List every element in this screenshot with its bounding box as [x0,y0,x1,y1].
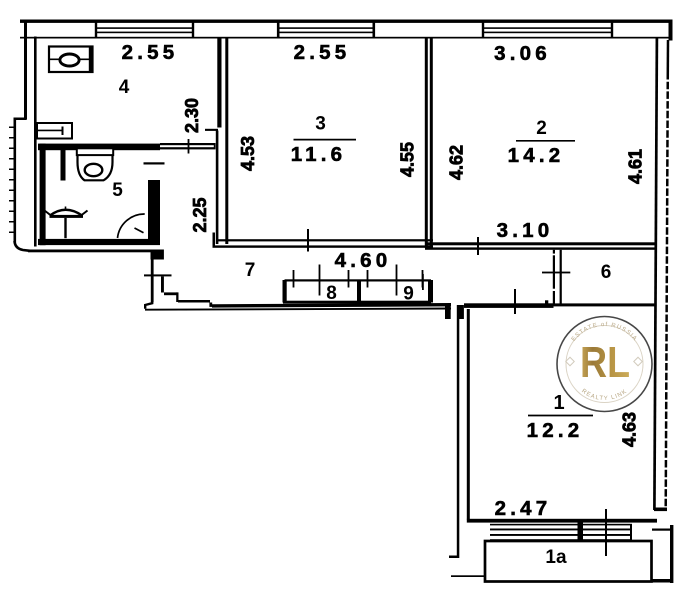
svg-text:2.55: 2.55 [122,41,179,64]
svg-text:4.53: 4.53 [238,136,258,171]
svg-text:11.6: 11.6 [291,143,347,166]
svg-text:5: 5 [112,180,123,201]
svg-text:12.2: 12.2 [527,419,584,442]
svg-text:6: 6 [601,262,612,283]
svg-text:2.25: 2.25 [190,197,210,232]
svg-text:1a: 1a [545,547,567,568]
svg-text:3.06: 3.06 [494,42,551,65]
svg-text:2.47: 2.47 [495,497,552,520]
svg-text:8: 8 [326,283,337,304]
svg-text:2.55: 2.55 [294,41,351,64]
svg-text:14.2: 14.2 [508,144,565,167]
svg-text:3.10: 3.10 [497,219,554,242]
svg-text:1: 1 [553,392,564,414]
svg-text:4.62: 4.62 [447,145,467,180]
svg-text:4.55: 4.55 [398,142,418,177]
svg-text:7: 7 [245,260,256,281]
svg-text:4.60: 4.60 [335,249,392,272]
svg-text:2.30: 2.30 [182,98,202,133]
svg-text:4.63: 4.63 [620,412,640,447]
svg-text:RL: RL [580,338,630,387]
svg-text:4: 4 [119,77,130,98]
svg-text:2: 2 [536,118,547,139]
svg-text:3: 3 [315,114,326,135]
svg-text:4.61: 4.61 [626,149,646,184]
svg-text:9: 9 [403,284,414,305]
